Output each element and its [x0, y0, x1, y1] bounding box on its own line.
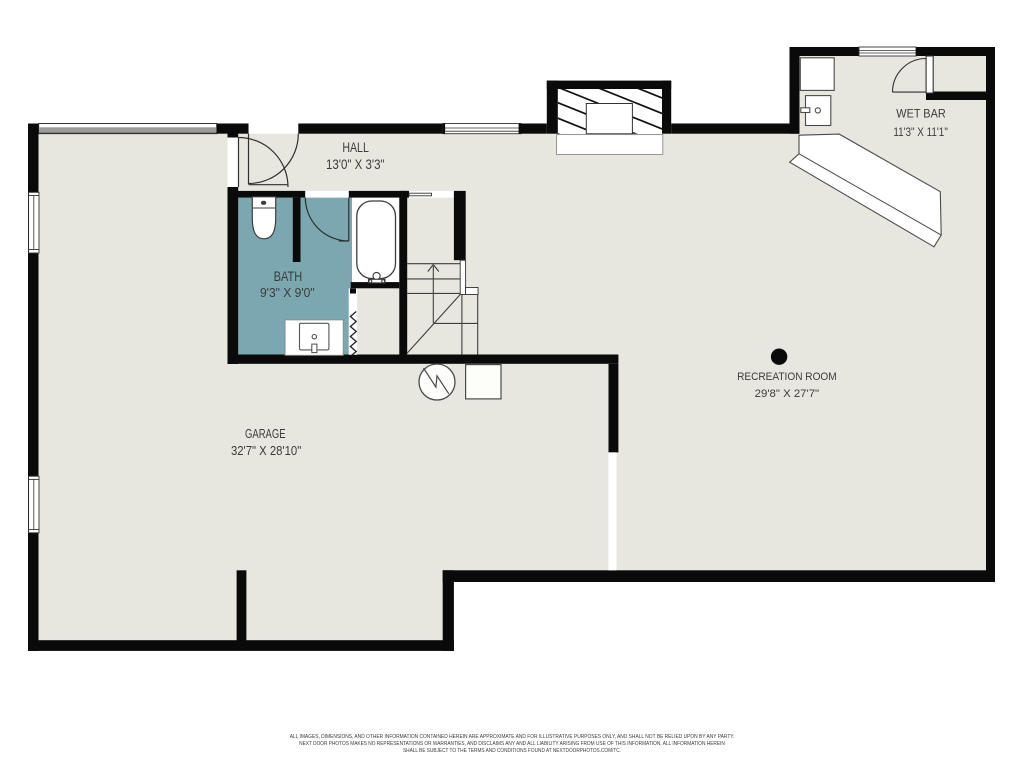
svg-text:GARAGE: GARAGE: [245, 426, 286, 441]
svg-text:29'8" X 27'7": 29'8" X 27'7": [755, 388, 820, 400]
svg-text:RECREATION ROOM: RECREATION ROOM: [737, 371, 837, 383]
svg-text:11'3" X 11'1": 11'3" X 11'1": [893, 127, 948, 139]
svg-text:13'0" X 3'3": 13'0" X 3'3": [326, 157, 385, 172]
svg-text:BATH: BATH: [274, 269, 303, 284]
svg-text:HALL: HALL: [342, 139, 369, 155]
svg-text:9'3" X 9'0": 9'3" X 9'0": [260, 285, 315, 300]
svg-text:32'7" X 28'10": 32'7" X 28'10": [231, 443, 302, 458]
svg-text:WET BAR: WET BAR: [896, 109, 945, 121]
svg-text:ALL IMAGES, DIMENSIONS, AND OT: ALL IMAGES, DIMENSIONS, AND OTHER INFORM…: [290, 734, 735, 740]
svg-text:NEXT DOOR PHOTOS MAKES NO REPR: NEXT DOOR PHOTOS MAKES NO REPRESENTATION…: [299, 741, 725, 747]
svg-text:SHALL BE SUBJECT TO THE TERMS: SHALL BE SUBJECT TO THE TERMS AND CONDIT…: [403, 748, 621, 754]
